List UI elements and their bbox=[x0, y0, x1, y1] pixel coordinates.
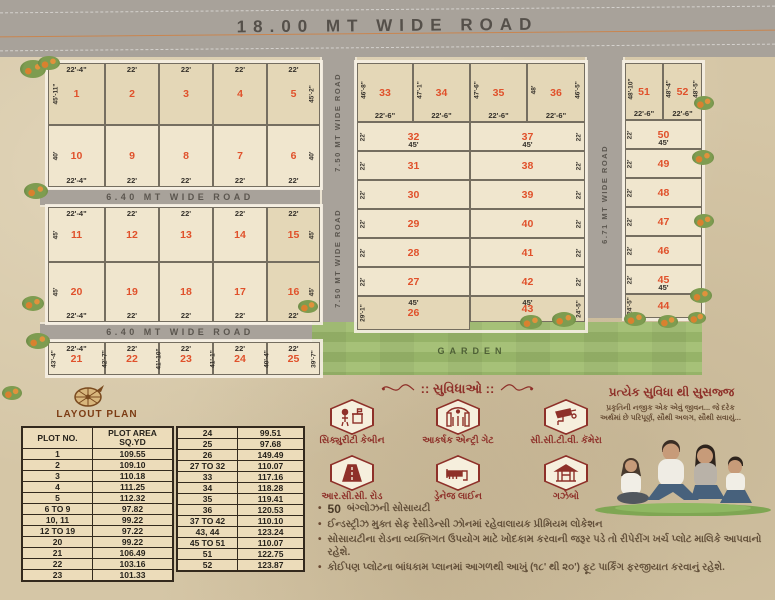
plot-length-label: 45' bbox=[358, 298, 469, 307]
plot-area-cell: 110.07 bbox=[238, 461, 304, 472]
table-row: 23101.33 bbox=[23, 570, 173, 581]
plot-area-cell: 97.82 bbox=[93, 504, 173, 515]
note-text: બંગ્લોઝની સોસાયટી bbox=[347, 503, 431, 516]
plot-number: 17 bbox=[234, 286, 246, 298]
table-header: PLOT AREA SQ.YD bbox=[93, 428, 173, 449]
plot-side-dim: 22' bbox=[360, 277, 367, 286]
plot-46: 46 bbox=[625, 236, 702, 265]
plot-width-label: 22'-6" bbox=[664, 109, 701, 118]
plot-number: 52 bbox=[677, 86, 689, 98]
plot-number: 31 bbox=[408, 160, 420, 172]
plot-no-cell: 12 TO 19 bbox=[23, 526, 93, 537]
plot-side-dim: 48'-5" bbox=[693, 80, 700, 98]
plot-area-cell: 112.32 bbox=[93, 493, 173, 504]
plot-width-label: 22' bbox=[214, 209, 266, 218]
road-750: 7.50 MT WIDE ROAD 7.50 MT WIDE ROAD bbox=[320, 57, 357, 322]
plot-side-dim: 48'-10" bbox=[628, 78, 635, 99]
plot-no-cell: 25 bbox=[178, 439, 238, 450]
plot-49: 49 bbox=[625, 149, 702, 178]
notes-list: •50બંગ્લોઝની સોસાયટી•ઈન્ડસ્ટ્રીઝ મુક્ત સ… bbox=[318, 503, 775, 578]
plot-area-cell: 117.16 bbox=[238, 472, 304, 483]
bush-icon bbox=[624, 312, 646, 326]
bush-icon bbox=[38, 56, 60, 70]
plot-width-label: 22'-6" bbox=[626, 109, 662, 118]
plot-no-cell: 4 bbox=[23, 482, 93, 493]
plot-number: 10 bbox=[71, 150, 83, 162]
plot-area-cell: 109.10 bbox=[93, 460, 173, 471]
plot-number: 30 bbox=[408, 189, 420, 201]
table-row: 5112.32 bbox=[23, 493, 173, 504]
plot-number: 5 bbox=[291, 88, 297, 100]
plot-side-dim: 24'-5" bbox=[576, 300, 583, 318]
plot-number: 36 bbox=[550, 87, 562, 99]
table-row: 21106.49 bbox=[23, 548, 173, 559]
plot-width-label: 22' bbox=[106, 176, 158, 185]
plot-side-dim: 47'-6" bbox=[474, 81, 481, 99]
road-640-lower: 6.40 MT WIDE ROAD bbox=[40, 322, 320, 342]
plot-side-dim: 46'-8" bbox=[361, 81, 368, 99]
note-item: •50બંગ્લોઝની સોસાયટી bbox=[318, 503, 775, 516]
road-640-label: 6.40 MT WIDE ROAD bbox=[106, 192, 254, 202]
plot-width-label: 22' bbox=[268, 65, 319, 74]
plot-area-cell: 101.33 bbox=[93, 570, 173, 581]
bush-icon bbox=[694, 214, 714, 228]
plot-width-label: 22' bbox=[160, 176, 212, 185]
table-row: 3110.18 bbox=[23, 471, 173, 482]
table-row: 45 TO 51110.07 bbox=[178, 538, 304, 549]
plot-width-label: 22'-4" bbox=[49, 311, 104, 320]
amenities-title: :: સુવિધાઓ :: bbox=[330, 381, 585, 397]
plot-side-dim: 45' bbox=[53, 230, 60, 239]
plot-side-dim: 41'-10" bbox=[156, 348, 163, 369]
plot-side-dim: 22' bbox=[627, 246, 634, 255]
promo-heading: પ્રત્યેક સુવિધા થી સુસજ્જ bbox=[568, 385, 775, 400]
plot-number: 38 bbox=[522, 160, 534, 172]
plot-number: 1 bbox=[74, 88, 80, 100]
plot-width-label: 22'-6" bbox=[528, 111, 584, 120]
plot-22: 2222' bbox=[105, 342, 159, 375]
note-item: •કોઈપણ પ્લોટના બાંધકામ પ્લાનમાં આગળથી આખ… bbox=[318, 562, 775, 575]
plot-side-dim: 40' bbox=[309, 152, 316, 161]
table-row: 2109.10 bbox=[23, 460, 173, 471]
plot-number: 2 bbox=[129, 88, 135, 100]
amenity-item: આર.સી.સી. રોડ bbox=[300, 455, 404, 502]
plot-number: 20 bbox=[71, 286, 83, 298]
plot-side-dim: 45'-2" bbox=[309, 85, 316, 103]
table-row: 2099.22 bbox=[23, 537, 173, 548]
plot-area-cell: 110.10 bbox=[238, 516, 304, 527]
plot-width-label: 22' bbox=[160, 65, 212, 74]
road-671: 6.71 MT WIDE ROAD bbox=[585, 57, 625, 318]
amenity-item: ડ્રેનેજ લાઈન bbox=[406, 455, 510, 502]
rcc-road-icon bbox=[330, 455, 374, 491]
plot-area-cell: 122.75 bbox=[238, 549, 304, 560]
plot-area-cell: 123.24 bbox=[238, 527, 304, 538]
plot-number: 15 bbox=[288, 229, 300, 241]
bush-icon bbox=[2, 386, 22, 400]
plot-area-table-1: PLOT NO.PLOT AREA SQ.YD1109.552109.10311… bbox=[22, 427, 173, 581]
plot-38: 38 bbox=[470, 151, 585, 180]
plot-no-cell: 33 bbox=[178, 472, 238, 483]
layout-poster: 18.00 MT WIDE ROAD 7.50 MT WIDE ROAD 7.5… bbox=[0, 0, 775, 600]
plot-no-cell: 51 bbox=[178, 549, 238, 560]
plot-number: 24 bbox=[234, 353, 246, 365]
plot-width-label: 22' bbox=[160, 344, 212, 353]
plot-area-cell: 97.68 bbox=[238, 439, 304, 450]
plot-no-cell: 10, 11 bbox=[23, 515, 93, 526]
table-row: 22103.16 bbox=[23, 559, 173, 570]
table-row: 6 TO 997.82 bbox=[23, 504, 173, 515]
plot-width-label: 22' bbox=[160, 209, 212, 218]
plot-number: 48 bbox=[658, 187, 670, 199]
note-item: •ઈન્ડસ્ટ્રીઝ મુક્ત સેફ રેસીડેન્સી ઝોનમાં… bbox=[318, 519, 775, 532]
plot-number: 41 bbox=[522, 247, 534, 259]
plot-24: 2422' bbox=[213, 342, 267, 375]
table-row: 26149.49 bbox=[178, 450, 304, 461]
plot-length-label: 45' bbox=[471, 298, 584, 307]
plot-28: 28 bbox=[357, 238, 470, 267]
plot-area-table-2: 2499.512597.6826149.4927 TO 32110.073311… bbox=[177, 427, 304, 571]
plot-47: 47 bbox=[625, 207, 702, 236]
plot-30: 30 bbox=[357, 180, 470, 209]
plot-side-dim: 41'-1" bbox=[210, 350, 217, 368]
amenity-label: ડ્રેનેજ લાઈન bbox=[406, 492, 510, 502]
plot-side-dim: 48'-4" bbox=[666, 80, 673, 98]
plot-number: 21 bbox=[71, 353, 83, 365]
layout-plan-title: LAYOUT PLAN bbox=[22, 409, 172, 420]
plot-50: 5045' bbox=[625, 120, 702, 149]
plot-2: 222' bbox=[105, 63, 159, 125]
plot-length-label: 45' bbox=[626, 283, 701, 292]
note-item: •સોસાયટીના રોડના વ્યક્તિગત ઉપયોગ માટે ખો… bbox=[318, 534, 775, 559]
promo-subline-1: પ્રકૃતિની નજીક એક એવું જીવન... જે દરેક bbox=[566, 403, 775, 413]
plot-number: 16 bbox=[288, 286, 300, 298]
plot-4: 422' bbox=[213, 63, 267, 125]
plot-number: 35 bbox=[493, 87, 505, 99]
plot-number: 23 bbox=[180, 353, 192, 365]
gazebo-icon bbox=[544, 455, 588, 491]
note-number: 50 bbox=[328, 503, 341, 516]
plot-number: 49 bbox=[658, 158, 670, 170]
plot-number: 7 bbox=[237, 150, 243, 162]
plot-side-dim: 45'-11" bbox=[53, 84, 60, 105]
plot-area-cell: 123.87 bbox=[238, 560, 304, 571]
road-750-label: 7.50 MT WIDE ROAD bbox=[333, 209, 342, 308]
plot-no-cell: 34 bbox=[178, 483, 238, 494]
plot-width-label: 22'-4" bbox=[49, 176, 104, 185]
plot-9: 922' bbox=[105, 125, 159, 187]
plot-area-cell: 103.16 bbox=[93, 559, 173, 570]
plot-side-dim: 22' bbox=[360, 190, 367, 199]
bullet-icon: • bbox=[318, 519, 322, 532]
plot-no-cell: 27 TO 32 bbox=[178, 461, 238, 472]
plot-width-label: 22' bbox=[268, 209, 319, 218]
plot-side-dim: 22' bbox=[627, 217, 634, 226]
plot-no-cell: 5 bbox=[23, 493, 93, 504]
bush-icon bbox=[552, 312, 576, 327]
bush-icon bbox=[688, 312, 706, 324]
bush-icon bbox=[298, 300, 318, 313]
road-671-label: 6.71 MT WIDE ROAD bbox=[600, 145, 609, 244]
plot-no-cell: 22 bbox=[23, 559, 93, 570]
plot-area-cell: 118.28 bbox=[238, 483, 304, 494]
plot-side-dim: 22' bbox=[627, 188, 634, 197]
amenity-label: સિક્યુરીટી કેબીન bbox=[300, 436, 404, 446]
plot-number: 11 bbox=[71, 229, 82, 241]
table-row: 4111.25 bbox=[23, 482, 173, 493]
plot-no-cell: 26 bbox=[178, 450, 238, 461]
plot-number: 28 bbox=[408, 247, 420, 259]
plot-number: 44 bbox=[658, 300, 670, 312]
plot-number: 25 bbox=[288, 353, 300, 365]
plot-width-label: 22' bbox=[106, 311, 158, 320]
plot-side-dim: 22' bbox=[360, 248, 367, 257]
plot-number: 47 bbox=[658, 216, 670, 228]
plot-48: 48 bbox=[625, 178, 702, 207]
plot-side-dim: 46'-5" bbox=[575, 81, 582, 99]
plot-width-label: 22' bbox=[214, 311, 266, 320]
plot-12: 1222' bbox=[105, 207, 159, 262]
flourish-right-icon bbox=[500, 384, 534, 394]
plot-31: 31 bbox=[357, 151, 470, 180]
bush-icon bbox=[692, 150, 714, 165]
plot-no-cell: 35 bbox=[178, 494, 238, 505]
plot-40: 40 bbox=[470, 209, 585, 238]
table-row: 1109.55 bbox=[23, 449, 173, 460]
plot-side-dim: 22' bbox=[576, 190, 583, 199]
plot-area-cell: 109.55 bbox=[93, 449, 173, 460]
plot-45: 4545' bbox=[625, 265, 702, 294]
amenity-label: આર.સી.સી. રોડ bbox=[300, 492, 404, 502]
security-cabin-icon bbox=[330, 399, 374, 435]
bush-icon bbox=[520, 315, 542, 329]
plot-no-cell: 43, 44 bbox=[178, 527, 238, 538]
plot-37: 3745' bbox=[470, 122, 585, 151]
plot-area-cell: 119.41 bbox=[238, 494, 304, 505]
plot-area-cell: 110.07 bbox=[238, 538, 304, 549]
road-750-label: 7.50 MT WIDE ROAD bbox=[333, 73, 342, 172]
plot-14: 1422' bbox=[213, 207, 267, 262]
table-row: 27 TO 32110.07 bbox=[178, 461, 304, 472]
plot-side-dim: 47'-1" bbox=[417, 81, 424, 99]
plot-no-cell: 21 bbox=[23, 548, 93, 559]
plot-side-dim: 22' bbox=[627, 275, 634, 284]
plot-area-cell: 106.49 bbox=[93, 548, 173, 559]
table-row: 51122.75 bbox=[178, 549, 304, 560]
plot-side-dim: 29'-1" bbox=[360, 304, 367, 322]
plot-width-label: 22' bbox=[214, 65, 266, 74]
plot-42: 42 bbox=[470, 267, 585, 296]
plot-area-cell: 110.18 bbox=[93, 471, 173, 482]
plot-no-cell: 20 bbox=[23, 537, 93, 548]
plot-width-label: 22' bbox=[106, 65, 158, 74]
plot-width-label: 22' bbox=[160, 311, 212, 320]
plot-number: 13 bbox=[180, 229, 192, 241]
plot-side-dim: 45' bbox=[53, 288, 60, 297]
plot-area-cell: 111.25 bbox=[93, 482, 173, 493]
plot-17: 1722' bbox=[213, 262, 267, 322]
plot-no-cell: 3 bbox=[23, 471, 93, 482]
bush-icon bbox=[690, 288, 712, 303]
plot-26: 2645' bbox=[357, 296, 470, 330]
amenity-item: સિક્યુરીટી કેબીન bbox=[300, 399, 404, 446]
drainage-line-icon bbox=[436, 455, 480, 491]
plot-number: 34 bbox=[436, 87, 448, 99]
flourish-left-icon bbox=[381, 384, 415, 394]
plot-side-dim: 22' bbox=[360, 132, 367, 141]
plot-width-label: 22'-6" bbox=[414, 111, 469, 120]
plot-number: 9 bbox=[129, 150, 135, 162]
road-dash-line bbox=[0, 44, 775, 52]
plot-3: 322' bbox=[159, 63, 213, 125]
plot-number: 12 bbox=[126, 229, 138, 241]
plot-side-dim: 22' bbox=[576, 277, 583, 286]
table-row: 43, 44123.24 bbox=[178, 527, 304, 538]
plot-side-dim: 43'-4" bbox=[51, 350, 58, 368]
bush-icon bbox=[694, 96, 714, 110]
table-row: 10, 1199.22 bbox=[23, 515, 173, 526]
note-text: સોસાયટીના રોડના વ્યક્તિગત ઉપયોગ માટે ખોદ… bbox=[328, 534, 775, 559]
table-row: 33117.16 bbox=[178, 472, 304, 483]
plot-area-cell: 97.22 bbox=[93, 526, 173, 537]
plot-width-label: 22' bbox=[106, 209, 158, 218]
garden-label: GARDEN bbox=[392, 346, 552, 356]
plot-number: 19 bbox=[126, 286, 138, 298]
plot-side-dim: 45' bbox=[309, 230, 316, 239]
plot-13: 1322' bbox=[159, 207, 213, 262]
table-row: 34118.28 bbox=[178, 483, 304, 494]
plot-width-label: 22'-6" bbox=[358, 111, 412, 120]
top-road-label: 18.00 MT WIDE ROAD bbox=[0, 13, 775, 40]
plot-18: 1822' bbox=[159, 262, 213, 322]
table-row: 2499.51 bbox=[178, 428, 304, 439]
plot-width-label: 22' bbox=[214, 176, 266, 185]
note-text: કોઈપણ પ્લોટના બાંધકામ પ્લાનમાં આગળથી આખુ… bbox=[328, 562, 725, 575]
plot-number: 46 bbox=[658, 245, 670, 257]
plot-number: 27 bbox=[408, 276, 420, 288]
plot-29: 29 bbox=[357, 209, 470, 238]
plot-number: 29 bbox=[408, 218, 420, 230]
table-row: 52123.87 bbox=[178, 560, 304, 571]
road-dash-line bbox=[0, 6, 775, 14]
plot-no-cell: 36 bbox=[178, 505, 238, 516]
plot-no-cell: 6 TO 9 bbox=[23, 504, 93, 515]
plot-number: 42 bbox=[522, 276, 534, 288]
plot-side-dim: 42'-7" bbox=[102, 350, 109, 368]
plot-number: 8 bbox=[183, 150, 189, 162]
plot-no-cell: 24 bbox=[178, 428, 238, 439]
plot-side-dim: 22' bbox=[627, 130, 634, 139]
plot-side-dim: 45' bbox=[309, 288, 316, 297]
table-row: 35119.41 bbox=[178, 494, 304, 505]
plot-side-dim: 48' bbox=[531, 86, 538, 95]
compass-icon bbox=[68, 382, 112, 408]
plot-8: 822' bbox=[159, 125, 213, 187]
table-row: 37 TO 42110.10 bbox=[178, 516, 304, 527]
road-640-upper: 6.40 MT WIDE ROAD bbox=[40, 187, 320, 207]
plot-area-cell: 99.22 bbox=[93, 537, 173, 548]
plot-width-label: 22' bbox=[268, 176, 319, 185]
plot-width-label: 22'-4" bbox=[49, 209, 104, 218]
bullet-icon: • bbox=[318, 503, 322, 516]
plot-side-dim: 40'-4" bbox=[264, 350, 271, 368]
plot-no-cell: 1 bbox=[23, 449, 93, 460]
plot-side-dim: 22' bbox=[576, 219, 583, 228]
plot-length-label: 45' bbox=[358, 140, 469, 149]
plot-no-cell: 52 bbox=[178, 560, 238, 571]
bush-icon bbox=[24, 183, 48, 199]
road-640-label: 6.40 MT WIDE ROAD bbox=[106, 327, 254, 337]
plot-side-dim: 22' bbox=[360, 219, 367, 228]
plot-area-cell: 149.49 bbox=[238, 450, 304, 461]
plot-41: 41 bbox=[470, 238, 585, 267]
plot-27: 27 bbox=[357, 267, 470, 296]
table-row: 36120.53 bbox=[178, 505, 304, 516]
plot-number: 33 bbox=[379, 87, 391, 99]
promo-subline-2: અર્થમાં છે પરિપૂર્ણ, સૌથી અલગ, સૌથી સવાય… bbox=[566, 413, 775, 423]
plot-number: 22 bbox=[126, 353, 138, 365]
plot-23: 2322' bbox=[159, 342, 213, 375]
bullet-icon: • bbox=[318, 562, 322, 575]
plot-number: 3 bbox=[183, 88, 189, 100]
bush-icon bbox=[658, 315, 678, 328]
plot-length-label: 45' bbox=[626, 138, 701, 147]
table-row: 12 TO 1997.22 bbox=[23, 526, 173, 537]
plot-side-dim: 40' bbox=[53, 152, 60, 161]
plot-39: 39 bbox=[470, 180, 585, 209]
plot-19: 1922' bbox=[105, 262, 159, 322]
plot-side-dim: 39'-7" bbox=[311, 350, 318, 368]
plot-number: 18 bbox=[180, 286, 192, 298]
plot-side-dim: 22' bbox=[627, 159, 634, 168]
plot-number: 26 bbox=[408, 307, 420, 319]
plot-7: 722' bbox=[213, 125, 267, 187]
plot-no-cell: 2 bbox=[23, 460, 93, 471]
plot-side-dim: 22' bbox=[576, 248, 583, 257]
plot-number: 14 bbox=[234, 229, 246, 241]
plot-length-label: 45' bbox=[471, 140, 584, 149]
plot-area-cell: 99.22 bbox=[93, 515, 173, 526]
plot-number: 39 bbox=[522, 189, 534, 201]
plot-number: 6 bbox=[291, 150, 297, 162]
plot-area-cell: 99.51 bbox=[238, 428, 304, 439]
plot-side-dim: 22' bbox=[360, 161, 367, 170]
bush-icon bbox=[22, 296, 44, 311]
entry-gate-icon bbox=[436, 399, 480, 435]
bush-icon bbox=[26, 333, 50, 349]
table-row: 2597.68 bbox=[178, 439, 304, 450]
plot-no-cell: 37 TO 42 bbox=[178, 516, 238, 527]
plot-width-label: 22' bbox=[214, 344, 266, 353]
table-header: PLOT NO. bbox=[23, 428, 93, 449]
amenity-item: આકર્ષક એન્ટ્રી ગેટ bbox=[406, 399, 510, 446]
plot-no-cell: 23 bbox=[23, 570, 93, 581]
plot-side-dim: 22' bbox=[576, 132, 583, 141]
amenity-label: આકર્ષક એન્ટ્રી ગેટ bbox=[406, 436, 510, 446]
plot-width-label: 22'-6" bbox=[471, 111, 526, 120]
plot-number: 4 bbox=[237, 88, 243, 100]
amenities-title-text: :: સુવિધાઓ :: bbox=[421, 381, 495, 397]
plot-number: 40 bbox=[522, 218, 534, 230]
bullet-icon: • bbox=[318, 534, 322, 559]
plot-area-cell: 120.53 bbox=[238, 505, 304, 516]
plot-side-dim: 22' bbox=[576, 161, 583, 170]
plot-no-cell: 45 TO 51 bbox=[178, 538, 238, 549]
top-road: 18.00 MT WIDE ROAD bbox=[0, 0, 775, 57]
note-text: ઈન્ડસ્ટ્રીઝ મુક્ત સેફ રેસીડેન્સી ઝોનમાં … bbox=[328, 519, 603, 532]
plot-32: 3245' bbox=[357, 122, 470, 151]
plot-number: 51 bbox=[638, 86, 650, 98]
